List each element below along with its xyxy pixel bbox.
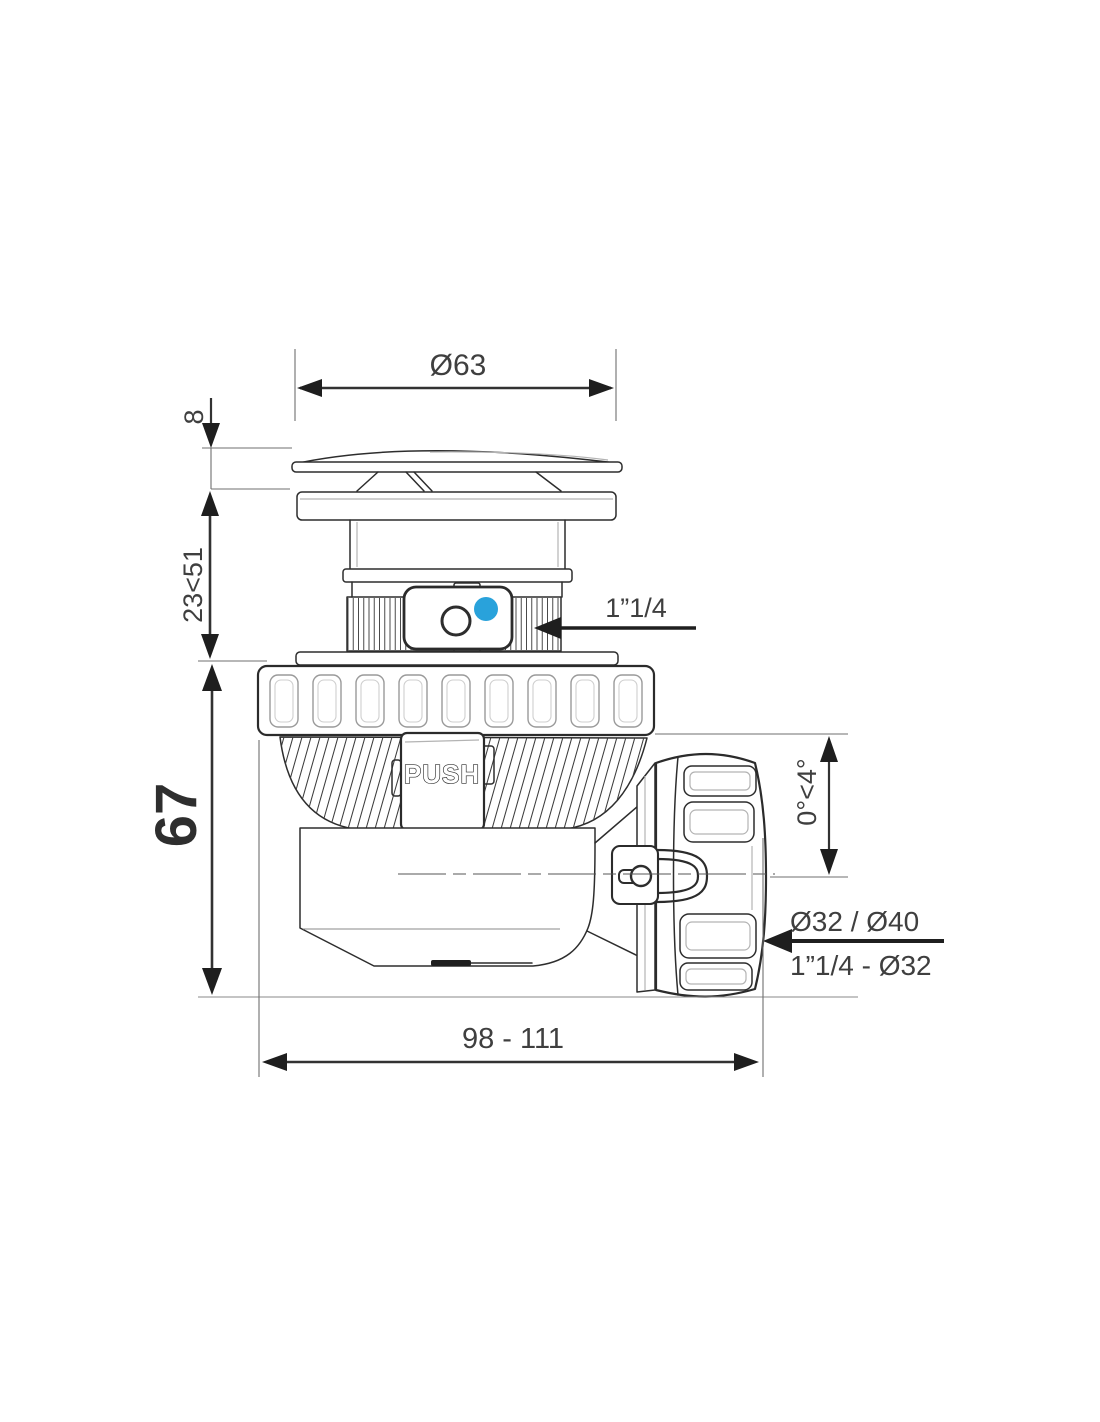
- technical-drawing-page: PUSH: [0, 0, 1100, 1422]
- overall-length-label: 98 - 111: [462, 1023, 564, 1055]
- arrowhead-up: [201, 491, 219, 516]
- outlet-thread-label: 1”1/4 - Ø32: [790, 950, 932, 981]
- base-flange: [296, 652, 618, 665]
- dim-adjustable-height: 23<51: [178, 491, 267, 661]
- arrowhead-down: [820, 849, 838, 875]
- keyhole-icon: [631, 866, 651, 886]
- trap-body: [300, 806, 638, 966]
- arrowhead-down: [201, 634, 219, 659]
- trap-seam: [431, 960, 471, 966]
- outlet-angle-label: 0°<4°: [792, 758, 822, 825]
- drain-trap-technical-drawing: PUSH: [0, 0, 1100, 1422]
- outlet: [612, 754, 766, 997]
- plate-hole: [442, 607, 470, 635]
- inlet-thread-label: 1”1/4: [605, 593, 667, 623]
- blue-indicator-dot: [474, 597, 498, 621]
- dim-body-height-label: 67: [144, 783, 209, 848]
- flange-ring: [297, 492, 616, 520]
- cap: [292, 451, 622, 491]
- lock-nut: [258, 666, 654, 735]
- trap-cup-outline: [300, 828, 595, 966]
- arrowhead-left: [262, 1053, 287, 1071]
- arrowhead-up: [202, 664, 222, 691]
- outlet-sizes-label: Ø32 / Ø40: [790, 906, 919, 937]
- push-tab: PUSH: [392, 733, 494, 830]
- dim-cap-diameter: Ø63: [295, 349, 616, 421]
- arrowhead-right: [589, 379, 614, 397]
- indicator-plate: [404, 583, 512, 654]
- dim-cap-height-label: 8: [179, 409, 209, 424]
- arrowhead-down: [202, 968, 222, 995]
- arrowhead-right: [734, 1053, 759, 1071]
- mounting-tab: [612, 846, 658, 904]
- mid-ring: [343, 569, 572, 582]
- upper-body: [343, 520, 572, 597]
- elbow-web-bottom: [587, 931, 638, 956]
- dim-adjustable-height-label: 23<51: [178, 547, 208, 623]
- product-drawing: PUSH: [220, 451, 775, 997]
- callout-outlet-size: Ø32 / Ø40 1”1/4 - Ø32: [763, 906, 944, 981]
- cap-flange: [297, 492, 616, 520]
- upper-cylinder-inner: [357, 522, 558, 567]
- arrowhead-left: [763, 929, 792, 953]
- arrowhead-down: [202, 423, 220, 448]
- upper-cylinder-walls: [350, 520, 565, 569]
- cap-support-left: [357, 472, 378, 491]
- extension-line: [202, 448, 292, 489]
- arrowhead-left: [297, 379, 322, 397]
- push-label: PUSH: [404, 759, 480, 789]
- dim-cap-height: 8: [179, 398, 292, 489]
- cap-support-right: [536, 472, 561, 491]
- cap-support-strut: [406, 472, 432, 491]
- dim-cap-diameter-label: Ø63: [430, 349, 487, 382]
- arrowhead-up: [820, 736, 838, 762]
- cap-plate: [292, 462, 622, 472]
